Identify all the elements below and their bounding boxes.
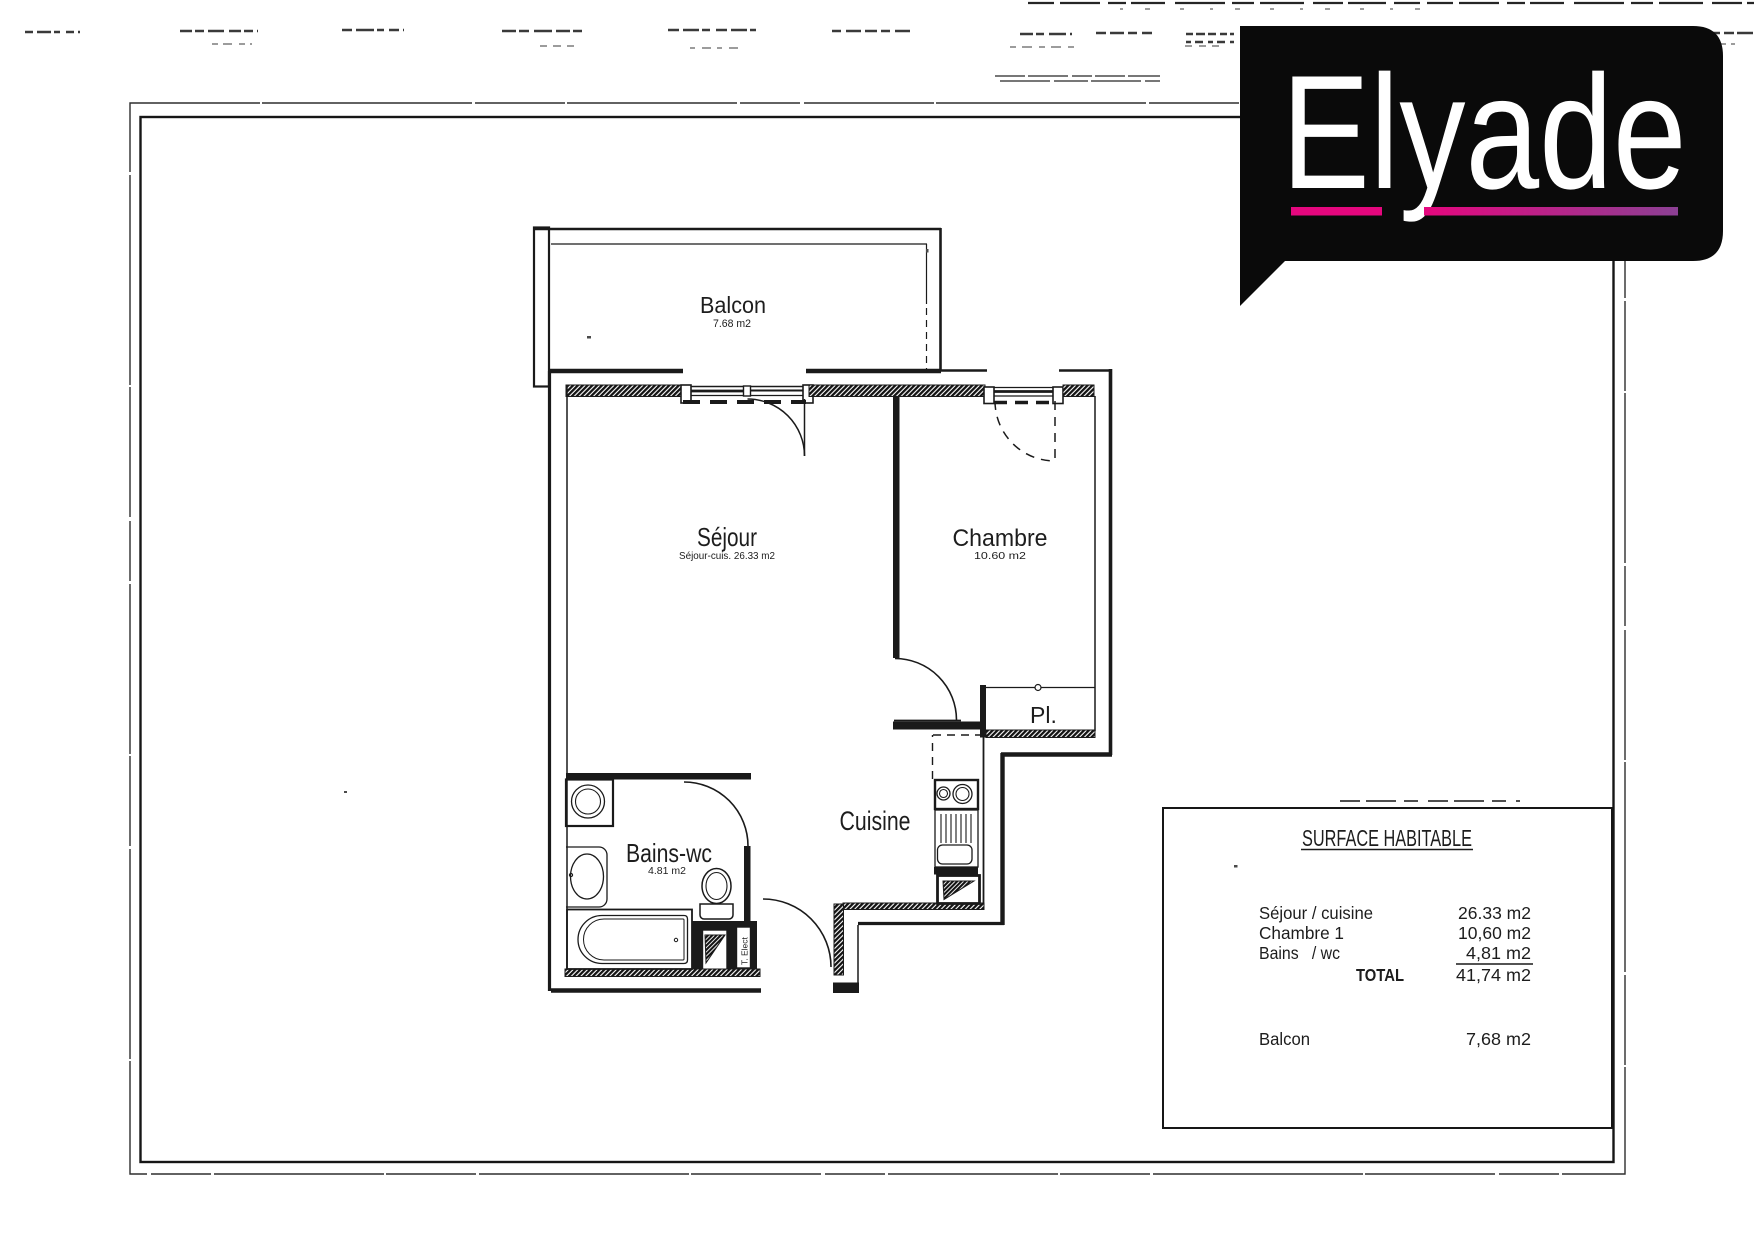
svg-text:Balcon: Balcon <box>1259 1029 1310 1049</box>
svg-text:7.68 m2: 7.68 m2 <box>713 318 751 330</box>
svg-text:Balcon: Balcon <box>700 292 766 318</box>
svg-text:10.60 m2: 10.60 m2 <box>974 550 1026 562</box>
svg-text:26.33 m2: 26.33 m2 <box>1458 903 1531 923</box>
svg-text:41,74 m2: 41,74 m2 <box>1456 965 1531 985</box>
svg-text:4.81 m2: 4.81 m2 <box>648 865 686 877</box>
svg-text:Chambre 1: Chambre 1 <box>1259 923 1344 943</box>
svg-text:Séjour: Séjour <box>697 522 757 552</box>
svg-text:Pl.: Pl. <box>1030 702 1057 728</box>
svg-text:Séjour-cuis. 26.33 m2: Séjour-cuis. 26.33 m2 <box>679 550 775 562</box>
svg-text:Bains / wc: Bains / wc <box>1259 943 1340 963</box>
svg-text:Chambre: Chambre <box>953 525 1048 552</box>
svg-text:Cuisine: Cuisine <box>840 806 911 836</box>
svg-text:7,68 m2: 7,68 m2 <box>1466 1029 1531 1049</box>
svg-text:TOTAL: TOTAL <box>1356 965 1404 985</box>
svg-text:10,60 m2: 10,60 m2 <box>1458 923 1531 943</box>
svg-text:4,81 m2: 4,81 m2 <box>1466 943 1531 963</box>
svg-text:T. Elect: T. Elect <box>740 936 750 965</box>
svg-text:Elyade: Elyade <box>1282 42 1687 223</box>
svg-text:Séjour / cuisine: Séjour / cuisine <box>1259 903 1373 923</box>
svg-text:Bains-wc: Bains-wc <box>626 838 712 868</box>
svg-text:SURFACE HABITABLE: SURFACE HABITABLE <box>1302 825 1472 851</box>
